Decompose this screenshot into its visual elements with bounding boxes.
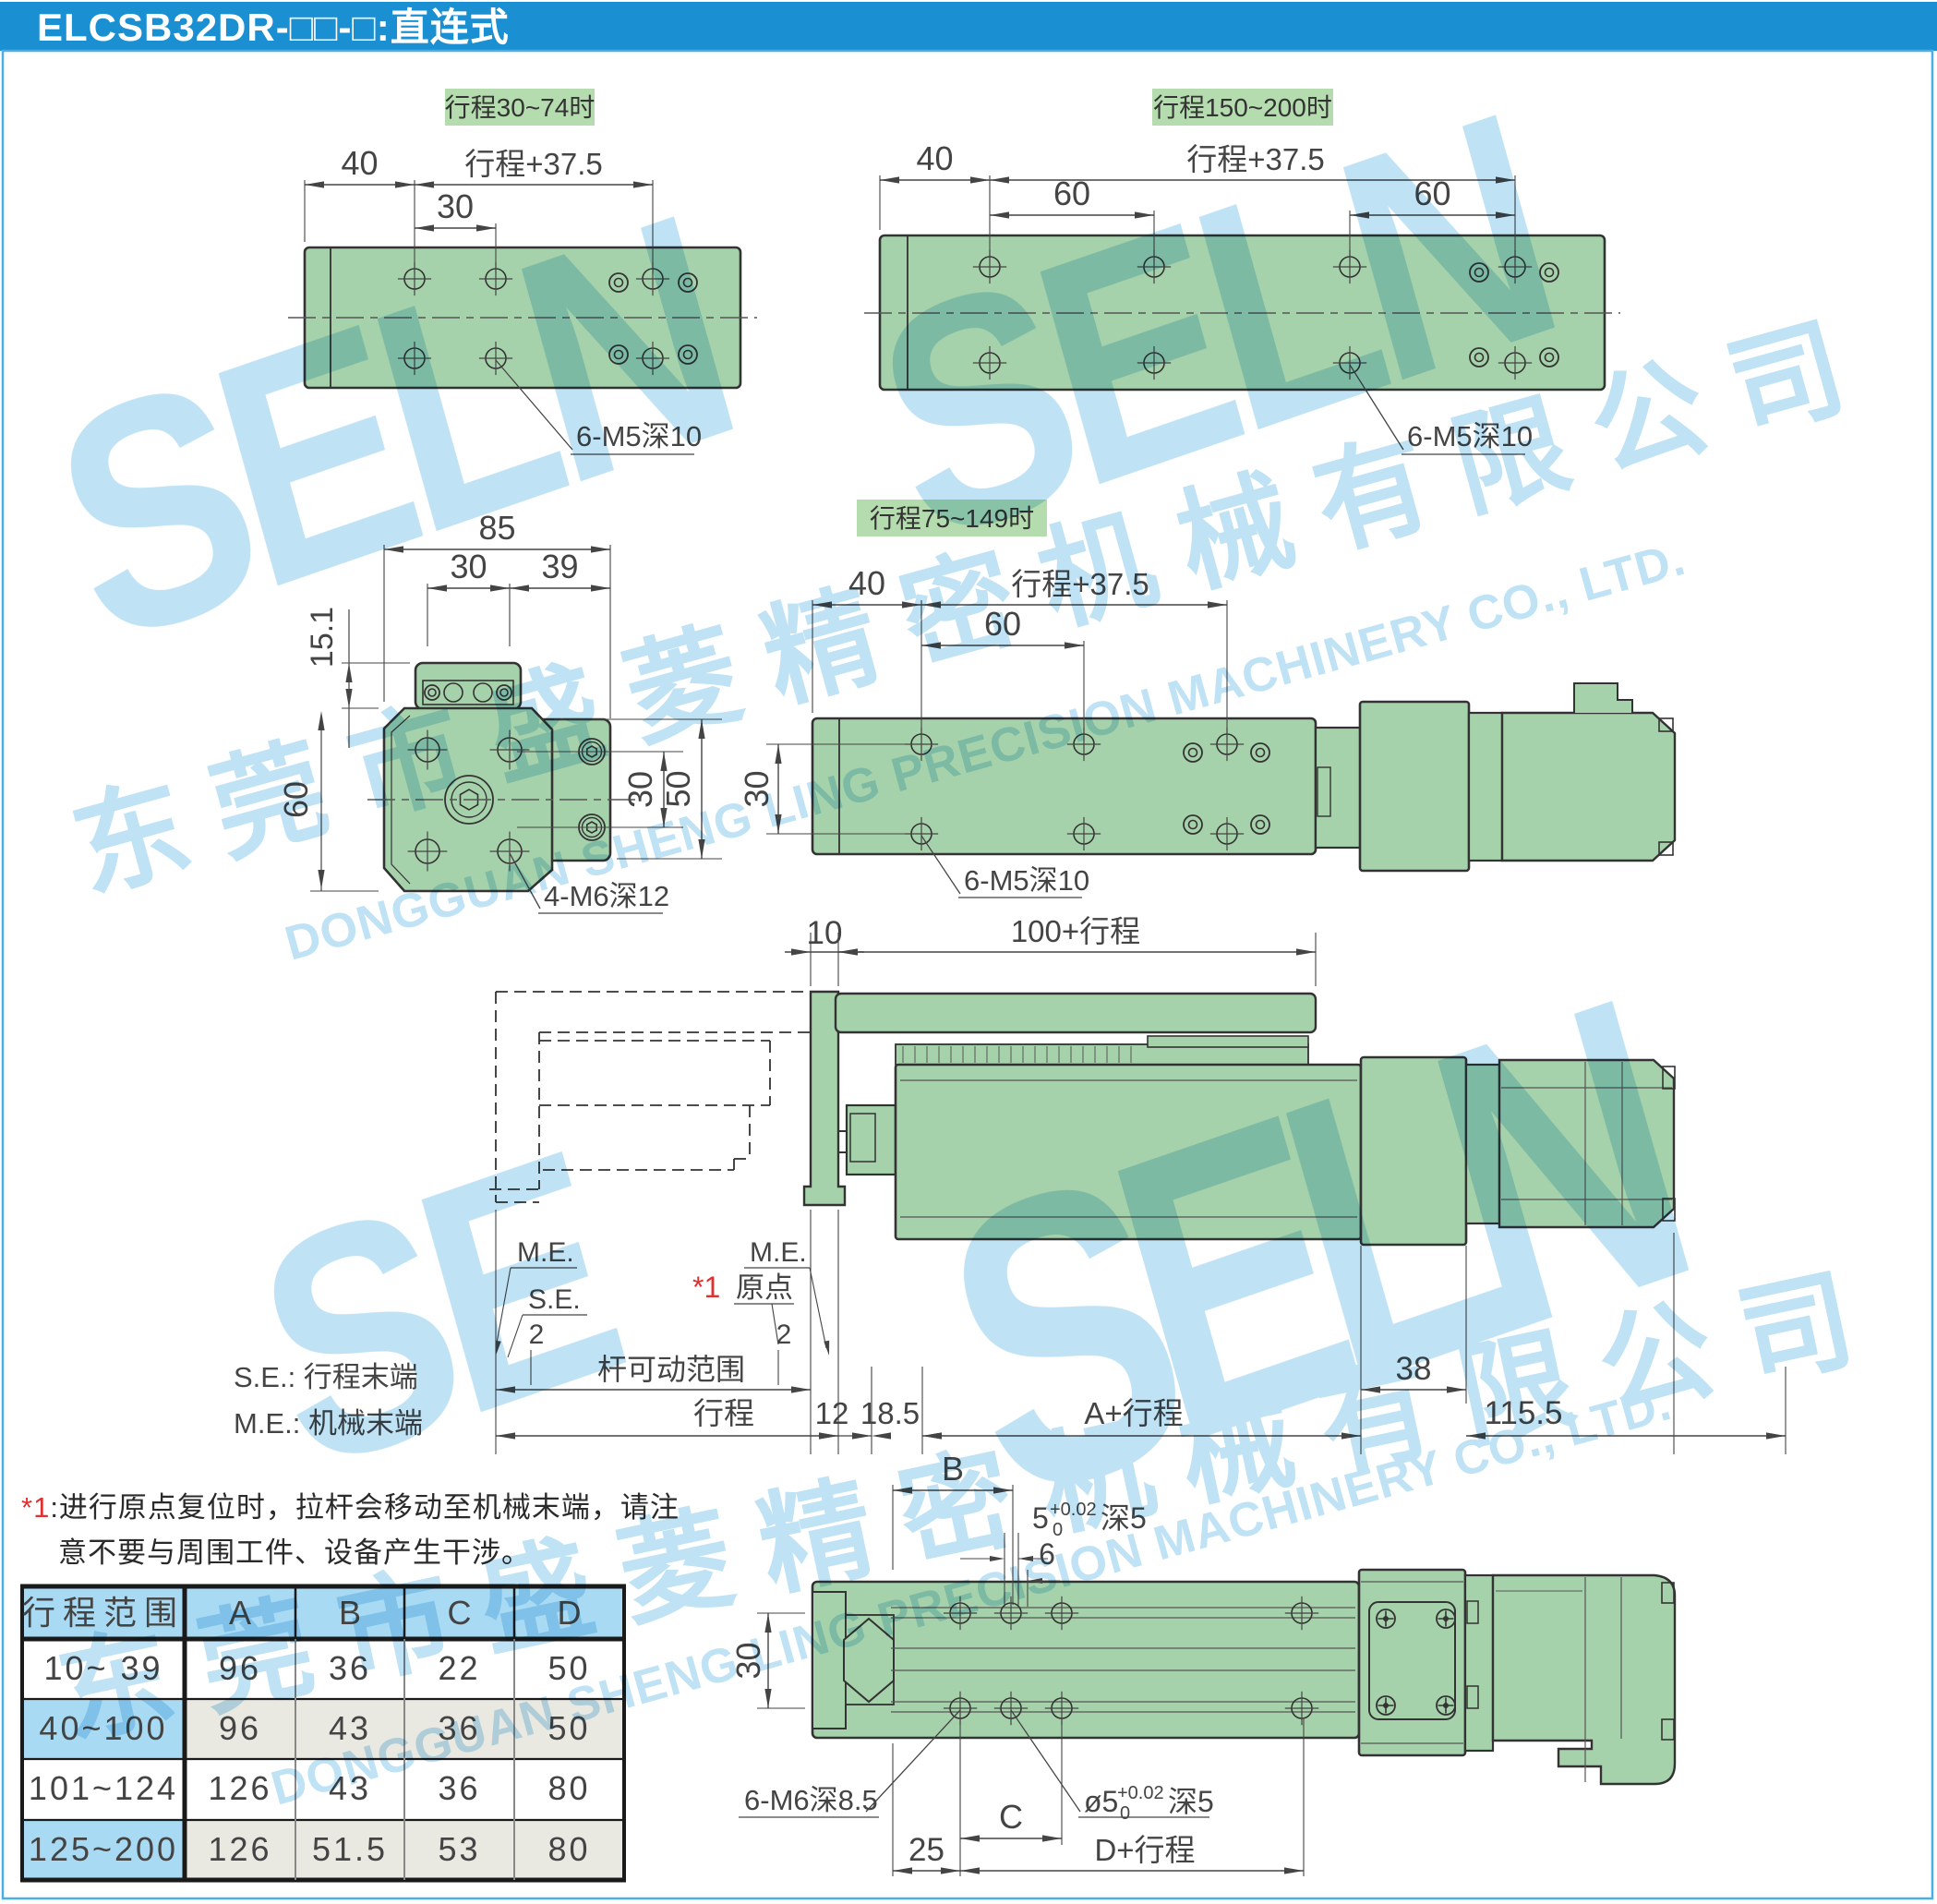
svg-text:126: 126 [208, 1769, 271, 1807]
svg-text:18.5: 18.5 [860, 1396, 920, 1430]
svg-text:2: 2 [776, 1320, 792, 1350]
svg-text:12: 12 [815, 1396, 849, 1430]
svg-text:40: 40 [341, 144, 378, 182]
svg-text:50: 50 [659, 770, 697, 807]
svg-text:深5: 深5 [1168, 1785, 1214, 1818]
svg-text:行程: 行程 [693, 1396, 754, 1430]
svg-text:*1: *1 [692, 1271, 720, 1304]
svg-text:100+行程: 100+行程 [1011, 914, 1140, 948]
svg-text:126: 126 [208, 1830, 271, 1868]
svg-text:10: 10 [807, 915, 843, 951]
svg-text:6-M6深8.5: 6-M6深8.5 [744, 1784, 878, 1816]
svg-text:原点: 原点 [736, 1271, 793, 1304]
svg-text:80: 80 [547, 1769, 590, 1807]
svg-text:0: 0 [1120, 1803, 1130, 1824]
svg-text:行程30~74时: 行程30~74时 [445, 93, 596, 122]
svg-text:51.5: 51.5 [312, 1830, 388, 1868]
svg-text:ø5: ø5 [1084, 1785, 1118, 1818]
svg-text:53: 53 [438, 1830, 480, 1868]
svg-text:36: 36 [438, 1769, 480, 1807]
svg-text:80: 80 [547, 1830, 590, 1868]
svg-text:ELCSB32DR-□□-□:直连式: ELCSB32DR-□□-□:直连式 [37, 6, 510, 49]
svg-text:C: C [999, 1798, 1023, 1836]
svg-text:M.E.: M.E. [750, 1237, 807, 1268]
svg-text:25: 25 [908, 1832, 944, 1868]
svg-text:40: 40 [916, 139, 953, 177]
svg-text:101~124: 101~124 [29, 1769, 178, 1807]
svg-text:+0.02: +0.02 [1117, 1783, 1164, 1803]
svg-text:30: 30 [621, 771, 659, 808]
svg-text:6-M5深10: 6-M5深10 [964, 864, 1089, 897]
svg-text:125~200: 125~200 [29, 1830, 178, 1868]
svg-text:D+行程: D+行程 [1094, 1833, 1195, 1867]
